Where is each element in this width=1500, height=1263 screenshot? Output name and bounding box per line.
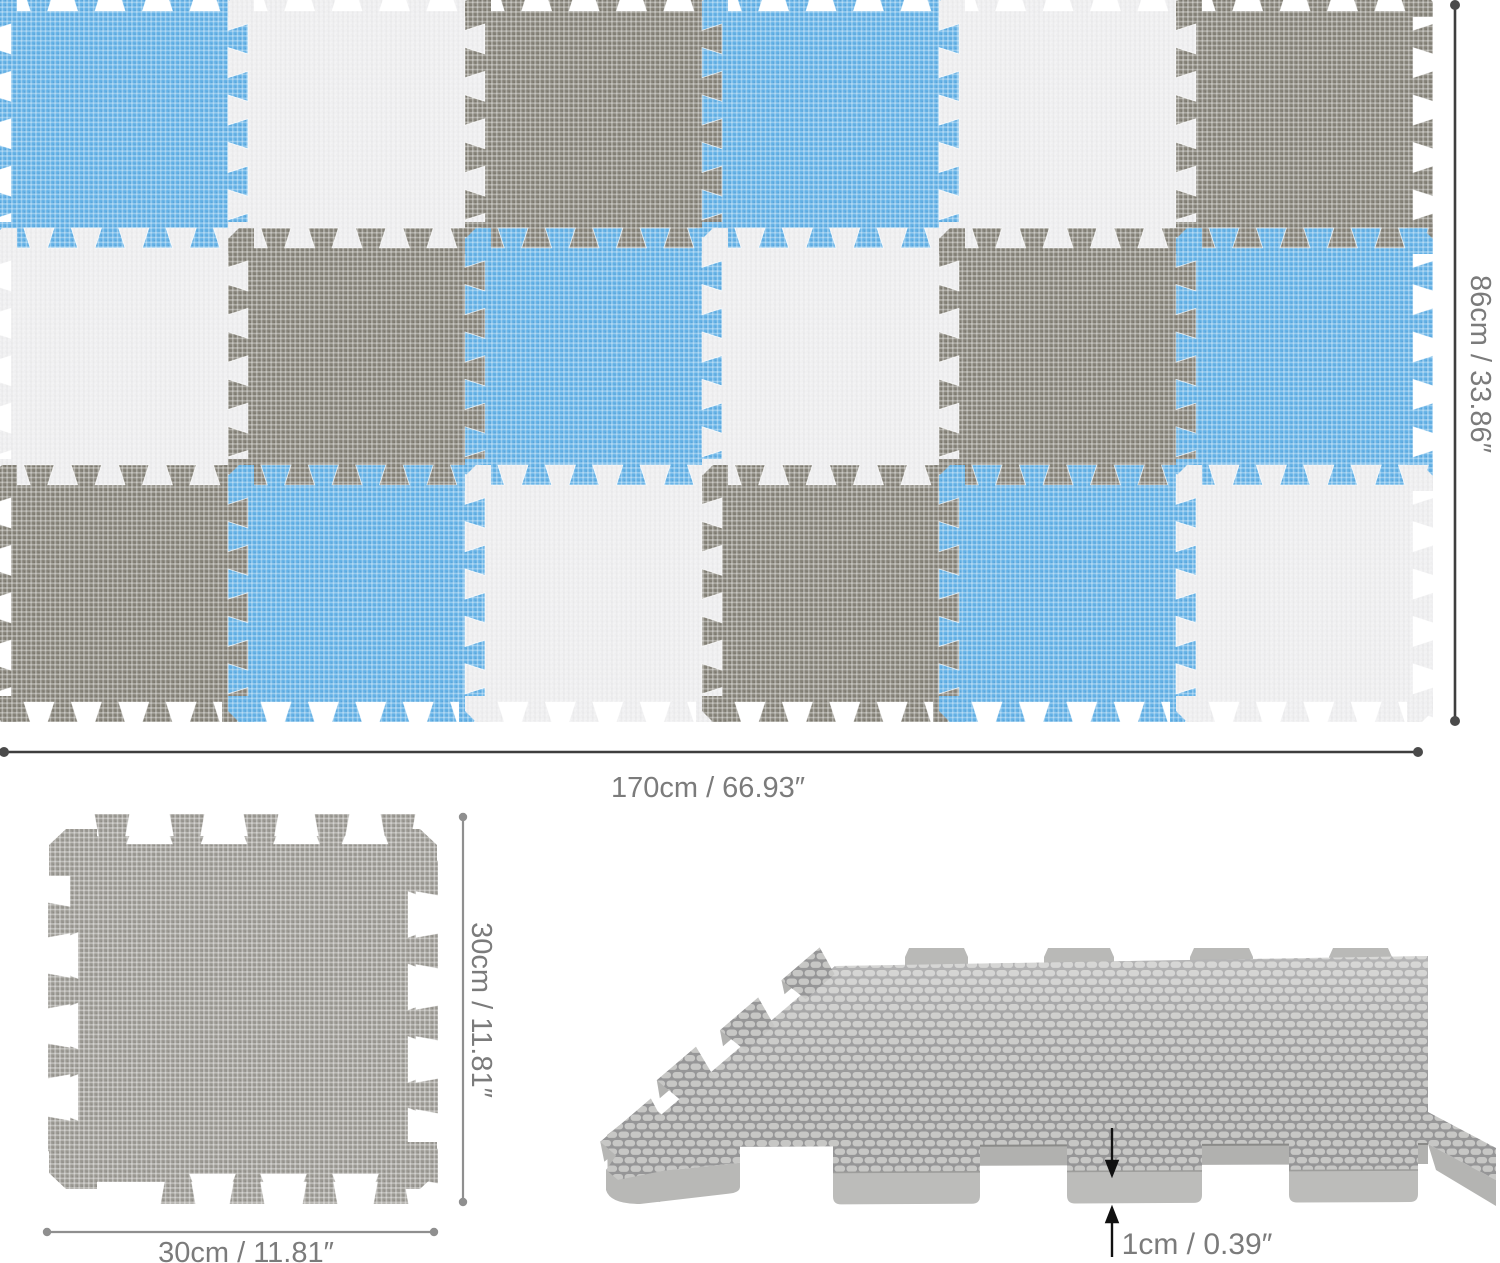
svg-text:30cm / 11.81″: 30cm / 11.81″	[465, 922, 497, 1098]
svg-text:1cm / 0.39″: 1cm / 0.39″	[1122, 1228, 1273, 1261]
svg-text:170cm / 66.93″: 170cm / 66.93″	[611, 772, 805, 804]
svg-text:86cm / 33.86″: 86cm / 33.86″	[1464, 275, 1496, 453]
svg-text:30cm / 11.81″: 30cm / 11.81″	[158, 1237, 334, 1263]
